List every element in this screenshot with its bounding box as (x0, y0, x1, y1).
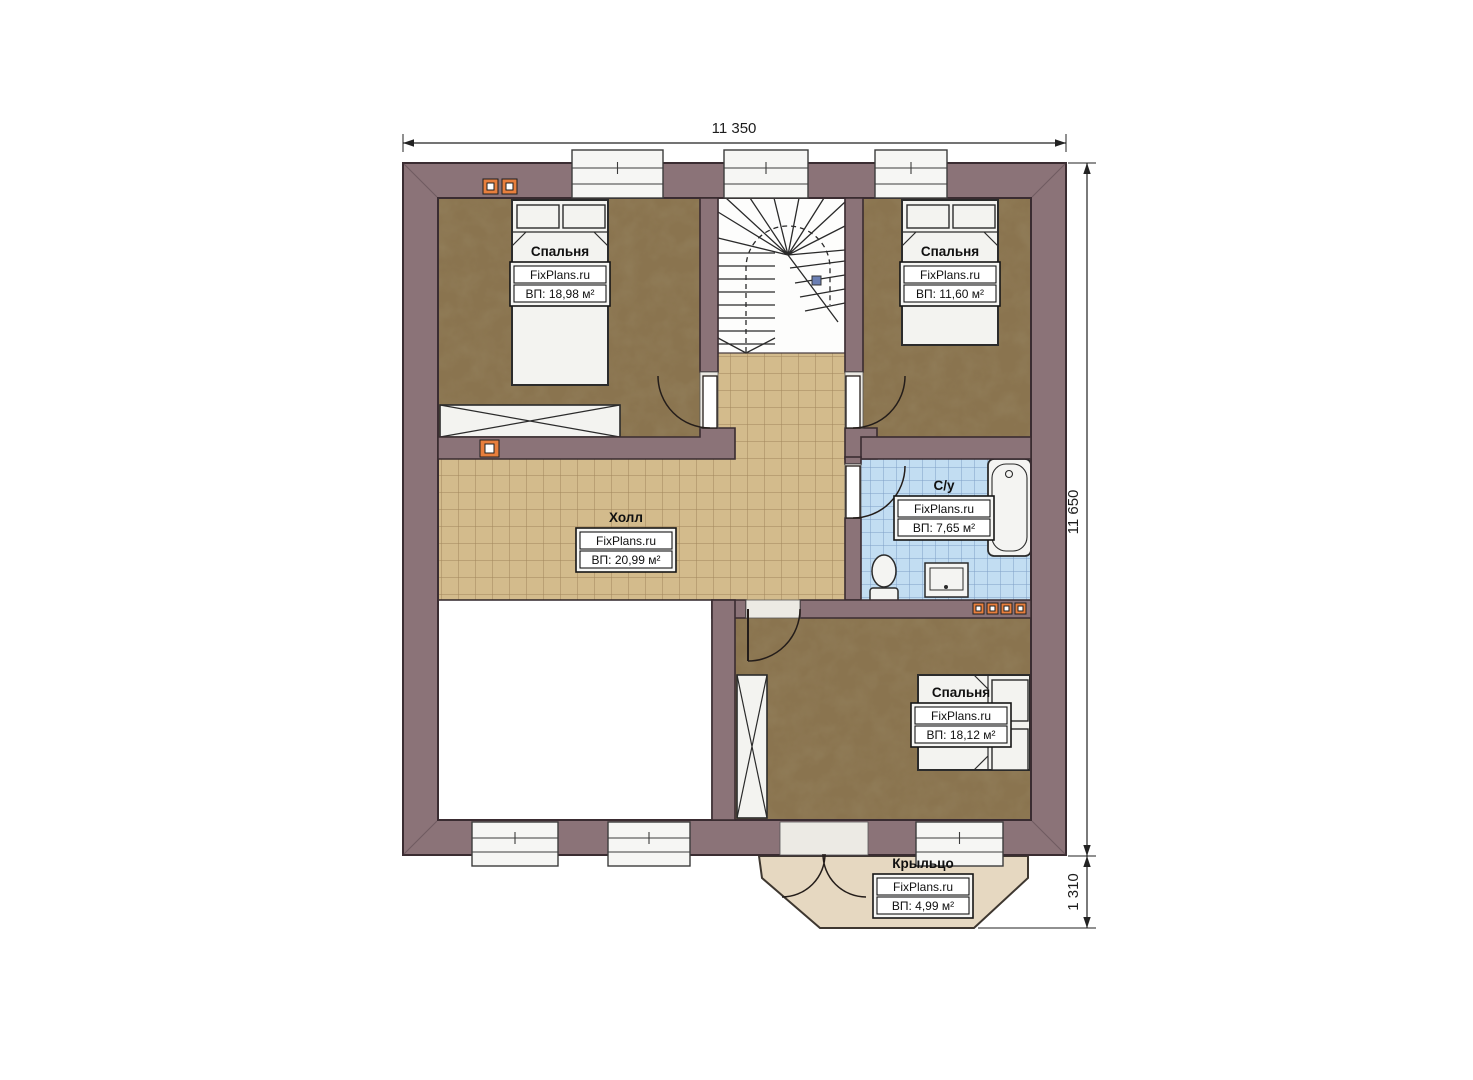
dimension-top: 11 350 (403, 120, 1066, 152)
window-bottom-1 (472, 822, 558, 866)
room-brand: FixPlans.ru (914, 502, 974, 516)
room-area: ВП: 4,99 м² (892, 899, 954, 913)
wall-v3 (712, 600, 735, 820)
window-top-2 (724, 150, 808, 198)
room-area: ВП: 18,12 м² (927, 728, 996, 742)
window-top-1 (572, 150, 663, 198)
dimension-top-value: 11 350 (712, 120, 757, 137)
room-name: Спальня (921, 244, 979, 259)
room-area: ВП: 7,65 м² (913, 521, 975, 535)
room-brand: FixPlans.ru (931, 709, 991, 723)
room-brand: FixPlans.ru (530, 268, 590, 282)
room-name: Спальня (932, 685, 990, 700)
room-brand: FixPlans.ru (920, 268, 980, 282)
open-room-floor (438, 600, 712, 820)
room-brand: FixPlans.ru (893, 880, 953, 894)
dimension-right-value: 11 650 (1065, 490, 1082, 535)
vent-block-hall-wall (480, 440, 499, 457)
room-area: ВП: 11,60 м² (916, 287, 984, 301)
floor-plan-drawing: Спальня FixPlans.ru ВП: 18,98 м² Спальня… (0, 0, 1473, 1080)
room-brand: FixPlans.ru (596, 534, 656, 548)
wall-bath-left-top (845, 457, 861, 464)
room-name: Спальня (531, 244, 589, 259)
window-bottom-2 (608, 822, 690, 866)
wall-h2 (861, 437, 1031, 459)
wall-v2 (845, 198, 863, 372)
room-area: ВП: 20,99 м² (592, 553, 661, 567)
room-name: С/у (933, 478, 955, 493)
sink-symbol (925, 563, 968, 597)
hall-floor-upper (718, 353, 845, 459)
dimension-porch-value: 1 310 (1065, 873, 1082, 911)
stairwell-floor (718, 198, 845, 353)
toilet-symbol (870, 555, 898, 604)
wall-bath-left-bottom (845, 518, 861, 600)
room-area: ВП: 18,98 м² (526, 287, 595, 301)
wall-v1 (700, 198, 718, 372)
window-top-3 (875, 150, 947, 198)
room-name: Крыльцо (892, 856, 953, 871)
stair-marker (812, 276, 821, 285)
floor-plan-page: Спальня FixPlans.ru ВП: 18,98 м² Спальня… (0, 0, 1473, 1080)
room-name: Холл (609, 510, 643, 525)
wardrobe-symbol-top-left (440, 405, 620, 437)
wardrobe-symbol-bottom (737, 675, 767, 818)
